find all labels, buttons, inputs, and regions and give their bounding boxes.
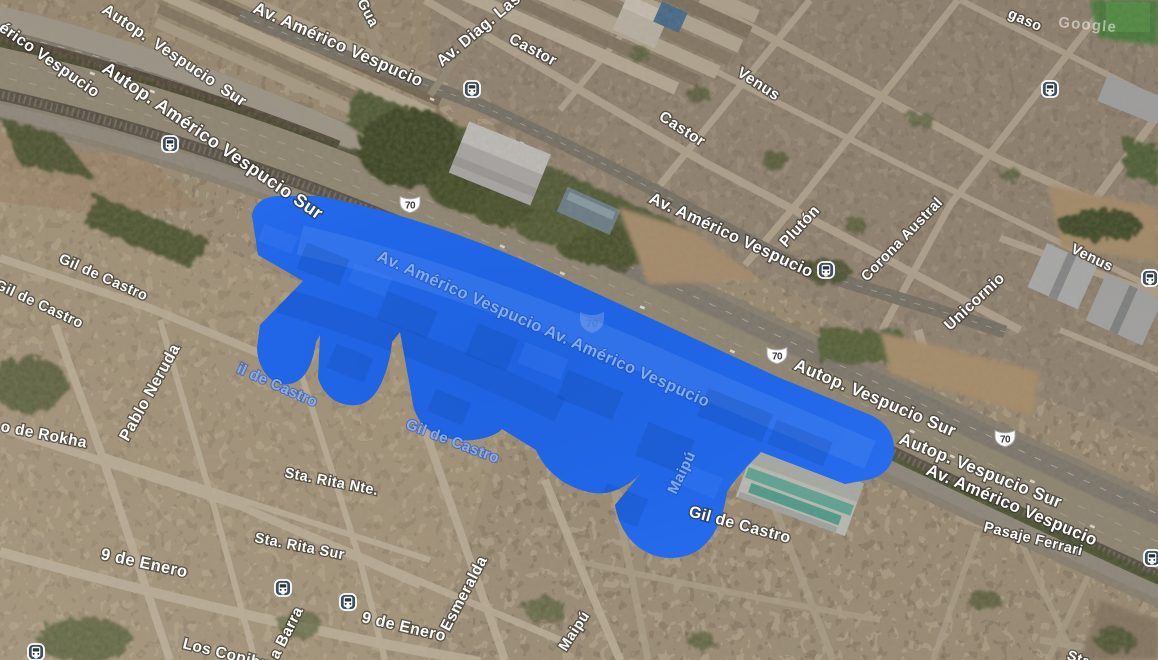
svg-text:70: 70 xyxy=(586,318,598,330)
